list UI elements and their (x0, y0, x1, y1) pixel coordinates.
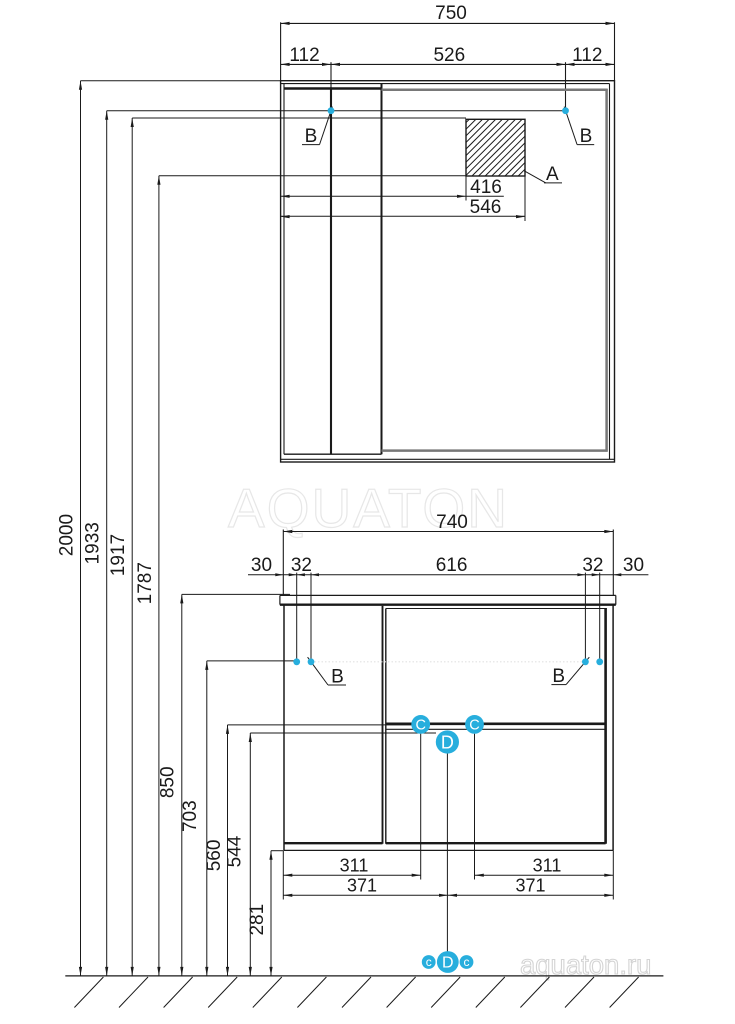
svg-text:371: 371 (515, 875, 545, 895)
svg-text:B: B (552, 666, 565, 687)
svg-text:B: B (305, 126, 318, 147)
svg-text:D: D (442, 955, 454, 972)
svg-text:C: C (469, 718, 479, 734)
svg-text:740: 740 (436, 512, 468, 533)
svg-text:750: 750 (435, 3, 467, 24)
svg-text:32: 32 (291, 555, 312, 576)
svg-text:B: B (331, 666, 344, 687)
svg-text:546: 546 (470, 197, 502, 218)
svg-text:311: 311 (533, 855, 562, 875)
svg-text:526: 526 (433, 45, 465, 66)
svg-text:544: 544 (225, 835, 246, 867)
svg-text:C: C (415, 718, 425, 734)
svg-text:616: 616 (436, 555, 468, 576)
svg-text:1933: 1933 (83, 522, 104, 564)
svg-text:371: 371 (347, 875, 377, 895)
svg-text:560: 560 (204, 840, 225, 872)
svg-text:1917: 1917 (108, 534, 129, 576)
svg-text:D: D (441, 732, 454, 752)
svg-text:2000: 2000 (57, 514, 78, 556)
svg-text:850: 850 (158, 766, 179, 798)
svg-text:c: c (464, 955, 470, 969)
svg-text:112: 112 (289, 45, 319, 66)
svg-text:703: 703 (180, 800, 201, 832)
svg-text:416: 416 (470, 177, 502, 198)
svg-text:281: 281 (247, 904, 268, 936)
svg-text:30: 30 (251, 555, 272, 576)
svg-text:1787: 1787 (135, 562, 156, 604)
svg-text:112: 112 (572, 45, 602, 66)
svg-text:A: A (546, 164, 559, 185)
svg-text:c: c (426, 955, 432, 969)
svg-text:B: B (580, 126, 593, 147)
svg-text:311: 311 (340, 855, 369, 875)
svg-text:30: 30 (623, 555, 644, 576)
